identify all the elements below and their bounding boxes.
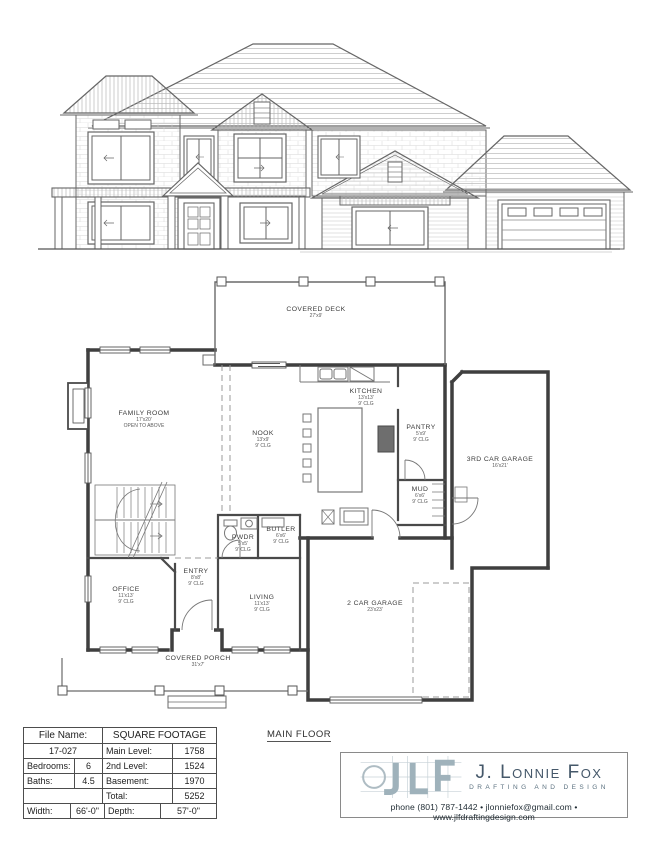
brand-top-row: J. Lonnie Fox DRAFTING AND DESIGN: [341, 753, 627, 799]
company-name: J. Lonnie Fox: [469, 763, 609, 783]
jlf-logo-icon: [359, 756, 463, 798]
main-level-label: Main Level:: [102, 744, 172, 758]
company-contact-line: phone (801) 787-1442 • jlonniefox@gmail.…: [341, 802, 627, 822]
second-level-value: 1524: [172, 759, 216, 773]
total-label: Total:: [102, 789, 172, 803]
basement-label: Basement:: [102, 774, 172, 788]
file-name-label: File Name:: [24, 728, 102, 743]
brand-name-wrap: J. Lonnie Fox DRAFTING AND DESIGN: [469, 763, 609, 791]
square-footage-header: SQUARE FOOTAGE: [102, 728, 216, 743]
width-label: Width:: [24, 804, 70, 818]
plan-sheet: COVERED DECK 27'x9' FAMILY ROOM 17'x20' …: [0, 0, 650, 842]
total-value: 5252: [172, 789, 216, 803]
floor-plan-drawing: COVERED DECK 27'x9' FAMILY ROOM 17'x20' …: [0, 268, 650, 728]
empty-cell: [24, 789, 102, 803]
sheet-title: MAIN FLOOR: [267, 729, 331, 742]
title-block-table: File Name: SQUARE FOOTAGE 17-027 Main Le…: [23, 727, 217, 819]
file-name-value: 17-027: [24, 744, 102, 758]
bedrooms-value: 6: [74, 759, 102, 773]
basement-value: 1970: [172, 774, 216, 788]
company-tagline: DRAFTING AND DESIGN: [469, 784, 609, 791]
elevation-svg: [0, 6, 650, 262]
main-level-value: 1758: [172, 744, 216, 758]
floor-plan-svg: [0, 268, 650, 728]
second-level-label: 2nd Level:: [102, 759, 172, 773]
front-elevation-drawing: [0, 6, 650, 262]
baths-value: 4.5: [74, 774, 102, 788]
depth-value: 57'-0": [160, 804, 216, 818]
width-value: 66'-0": [70, 804, 104, 818]
depth-label: Depth:: [104, 804, 160, 818]
baths-label: Baths:: [24, 774, 74, 788]
bedrooms-label: Bedrooms:: [24, 759, 74, 773]
company-branding-block: J. Lonnie Fox DRAFTING AND DESIGN phone …: [340, 752, 628, 818]
